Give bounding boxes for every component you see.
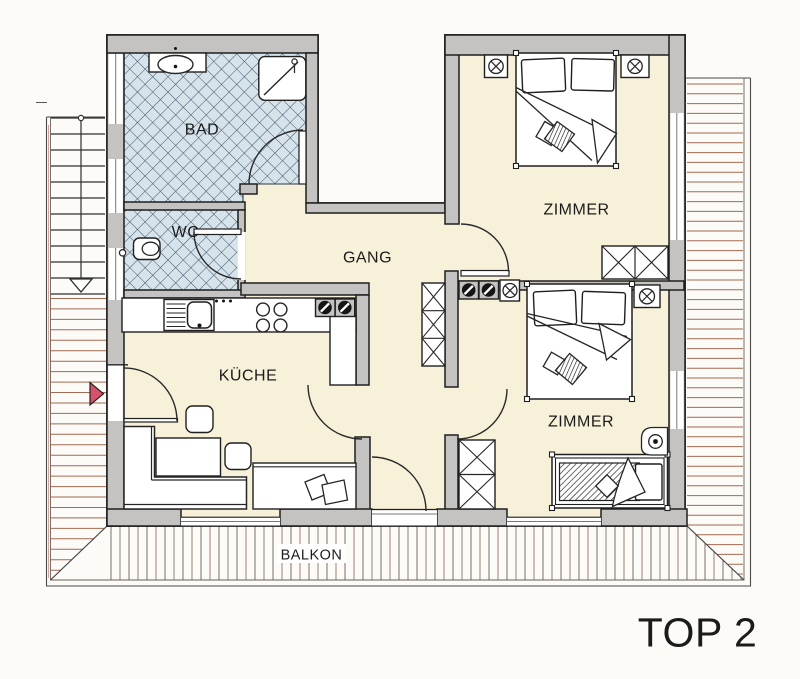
svg-text:TOP 2: TOP 2 bbox=[638, 610, 758, 656]
svg-text:BALKON: BALKON bbox=[281, 548, 343, 564]
svg-text:ZIMMER: ZIMMER bbox=[548, 414, 614, 431]
svg-text:ZIMMER: ZIMMER bbox=[543, 202, 609, 219]
svg-text:BAD: BAD bbox=[185, 122, 219, 139]
svg-text:KÜCHE: KÜCHE bbox=[219, 367, 278, 385]
svg-text:WC: WC bbox=[172, 224, 200, 241]
svg-text:GANG: GANG bbox=[343, 250, 392, 267]
